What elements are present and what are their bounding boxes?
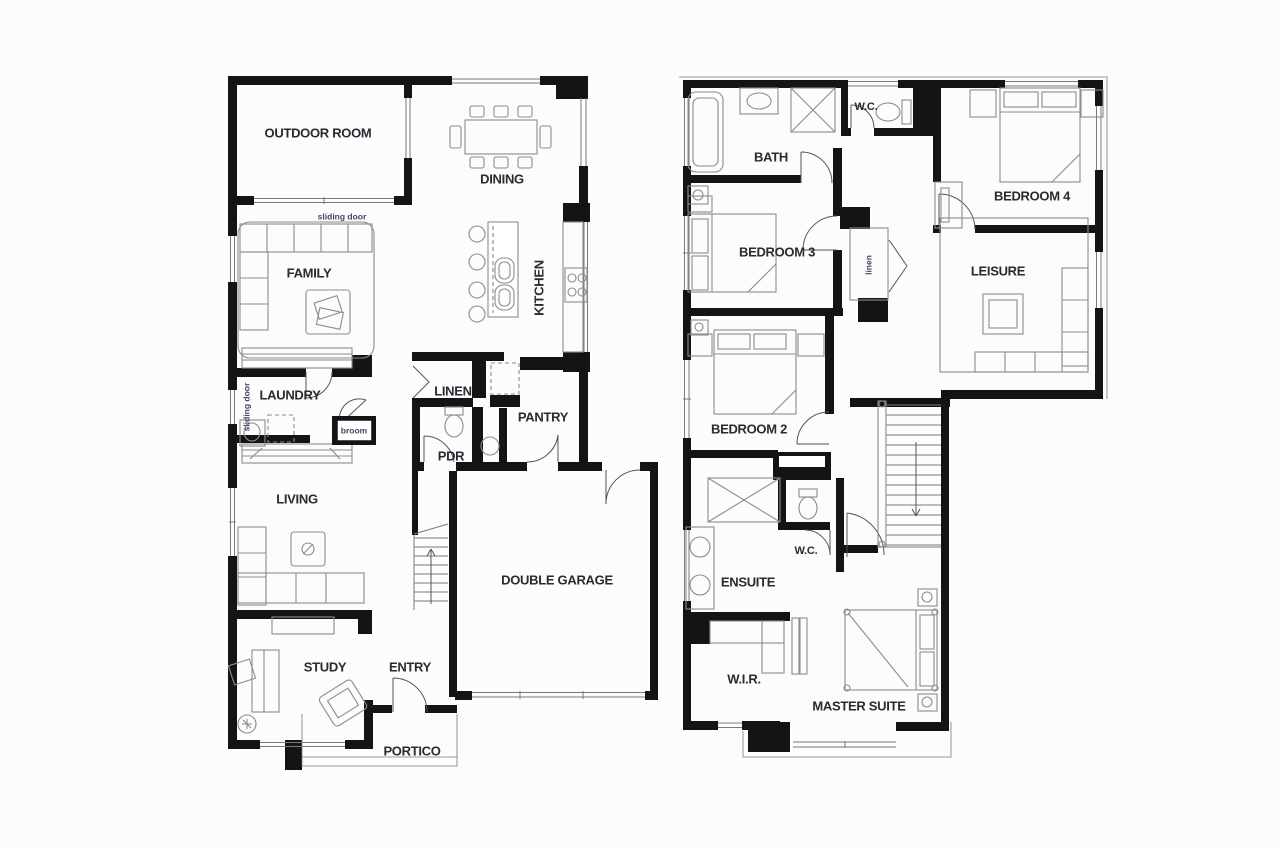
ground-stairs [414, 524, 448, 610]
room-label-study: STUDY [304, 659, 347, 674]
upper-eave-line [679, 77, 1107, 399]
bedroom3-bed [688, 186, 776, 292]
ground-floor-plan: OUTDOOR ROOM DINING sliding door FAMILY … [228, 76, 658, 770]
living-cabinet [242, 444, 352, 463]
upper-floor-plan: BATH W.C. BEDROOM 4 BEDROOM 3 linen LEIS… [679, 77, 1107, 757]
room-label-bath: BATH [754, 149, 788, 164]
floor-plan-page: OUTDOOR ROOM DINING sliding door FAMILY … [0, 0, 1280, 848]
room-label-bedroom3: BEDROOM 3 [739, 244, 815, 259]
upper-stairs [878, 401, 941, 547]
living-sofa [238, 527, 364, 605]
room-label-wir: W.I.R. [727, 671, 761, 686]
room-label-dining: DINING [480, 171, 524, 186]
room-label-master-suite: MASTER SUITE [812, 698, 906, 713]
room-label-living: LIVING [276, 491, 318, 506]
bedroom4-bed [935, 88, 1103, 228]
bedroom2-robe [773, 452, 831, 480]
dining-table [450, 106, 551, 168]
label-broom: broom [341, 425, 368, 435]
room-label-linen-ground: LINEN [434, 383, 472, 398]
room-label-wc-ensuite: W.C. [794, 545, 817, 557]
room-label-double-garage: DOUBLE GARAGE [501, 572, 613, 587]
room-label-kitchen: KITCHEN [531, 260, 546, 316]
room-label-portico: PORTICO [383, 743, 440, 758]
fridge-space [491, 363, 519, 394]
upper-labels: BATH W.C. BEDROOM 4 BEDROOM 3 linen LEIS… [711, 101, 1071, 714]
ground-walls [228, 76, 658, 770]
study-furniture [228, 617, 368, 733]
room-label-wc-upper: W.C. [854, 101, 877, 113]
wir-fittings [710, 618, 807, 674]
leisure-furniture [940, 218, 1088, 372]
room-label-pantry: PANTRY [518, 409, 569, 424]
kitchen-bench-cooktop [563, 222, 587, 352]
room-label-leisure: LEISURE [971, 263, 1026, 278]
upper-walls [683, 80, 1103, 752]
label-sliding-door-side: sliding door [241, 382, 251, 431]
family-sofa [238, 222, 374, 358]
room-label-outdoor-room: OUTDOOR ROOM [265, 125, 372, 140]
room-label-ensuite: ENSUITE [721, 574, 776, 589]
room-label-entry: ENTRY [389, 659, 432, 674]
kitchen-island [469, 222, 518, 322]
room-label-bedroom2: BEDROOM 2 [711, 421, 787, 436]
floor-plan-image: OUTDOOR ROOM DINING sliding door FAMILY … [0, 0, 1280, 848]
room-label-laundry: LAUNDRY [260, 387, 322, 402]
label-sliding-door-top: sliding door [318, 211, 367, 221]
room-label-family: FAMILY [287, 265, 332, 280]
room-label-pdr: PDR [438, 448, 465, 463]
master-bed [844, 589, 938, 711]
bedroom2-bed [688, 320, 824, 414]
room-label-bedroom4: BEDROOM 4 [994, 188, 1071, 203]
label-linen-upper: linen [863, 255, 873, 275]
